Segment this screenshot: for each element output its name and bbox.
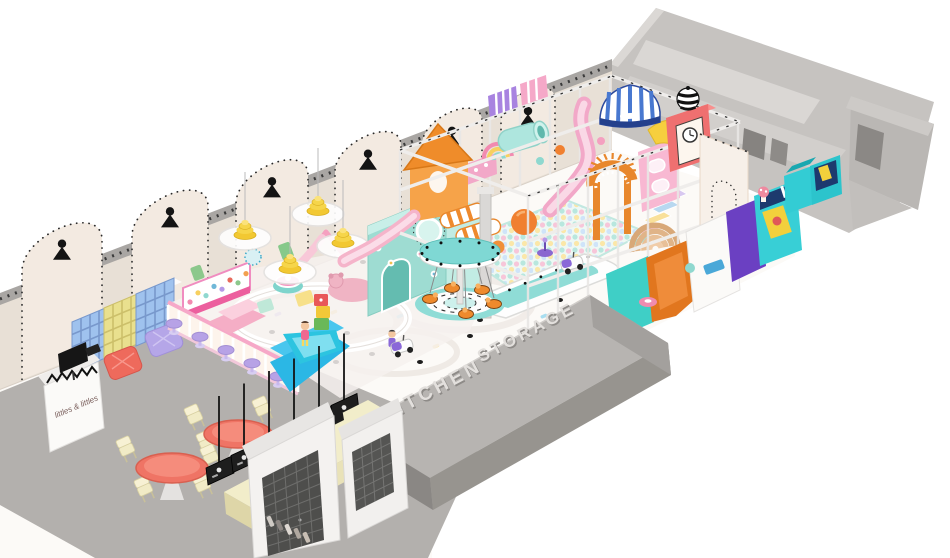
block-green	[314, 318, 329, 330]
canopy-dot-6	[426, 258, 429, 261]
busy-board-toy-2	[195, 290, 200, 295]
sun-ray-9	[628, 170, 636, 171]
busy-board-toy-8	[243, 271, 248, 276]
canopy-dot-12	[491, 246, 494, 249]
deck-panel-dot-2	[484, 163, 488, 167]
playground-render: littles & littles	[0, 0, 950, 558]
boat-dot-4	[524, 282, 527, 285]
busy-board-toy-7	[235, 280, 240, 285]
boat-dot-5	[539, 275, 542, 278]
sun-ray-1	[588, 169, 596, 170]
boat-dot-3	[508, 288, 511, 291]
busy-board-toy-5	[219, 287, 224, 292]
canopy-dot-8	[426, 246, 429, 249]
canopy-dot-9	[440, 241, 443, 244]
deck-ball-1	[555, 145, 565, 155]
canopy-dot-3	[478, 263, 481, 266]
busy-board-toy-3	[203, 293, 208, 298]
support-column-cap	[477, 187, 494, 194]
canopy-dot-7	[421, 252, 424, 255]
canopy-dot-5	[440, 263, 443, 266]
canopy-dot-2	[491, 258, 494, 261]
wall-lamp-ball-4	[364, 150, 372, 158]
floor-toy-ball	[685, 263, 695, 273]
deck-panel-dot-1	[474, 168, 478, 172]
block-dot	[319, 298, 322, 301]
teddy-ear-right	[338, 272, 343, 277]
floor-dot-4	[417, 360, 423, 364]
block-yellow	[316, 306, 330, 318]
floor-dot-13	[467, 334, 473, 338]
deck-ball-2	[536, 157, 544, 165]
wall-decor-dotted-wheel	[245, 249, 261, 265]
wall-lamp-ball-2	[166, 207, 174, 215]
wall-lamp-ball-1	[58, 239, 66, 247]
reception-monitor-stand	[73, 372, 74, 380]
canopy-dot-1	[497, 252, 500, 255]
busy-board-toy-4	[211, 284, 216, 289]
wall-lamp-ball-3	[268, 177, 276, 185]
busy-board-toy-6	[227, 277, 232, 282]
canopy-dot-11	[478, 241, 481, 244]
scene-svg: littles & littles	[0, 0, 950, 558]
busy-board-toy-1	[187, 299, 192, 304]
floor-toy-donut-hole	[645, 299, 652, 303]
deck-ball-3	[597, 137, 605, 145]
teddy-ear-left	[328, 273, 333, 278]
canopy-dot-10	[459, 240, 462, 243]
canopy-dot-4	[459, 264, 462, 267]
